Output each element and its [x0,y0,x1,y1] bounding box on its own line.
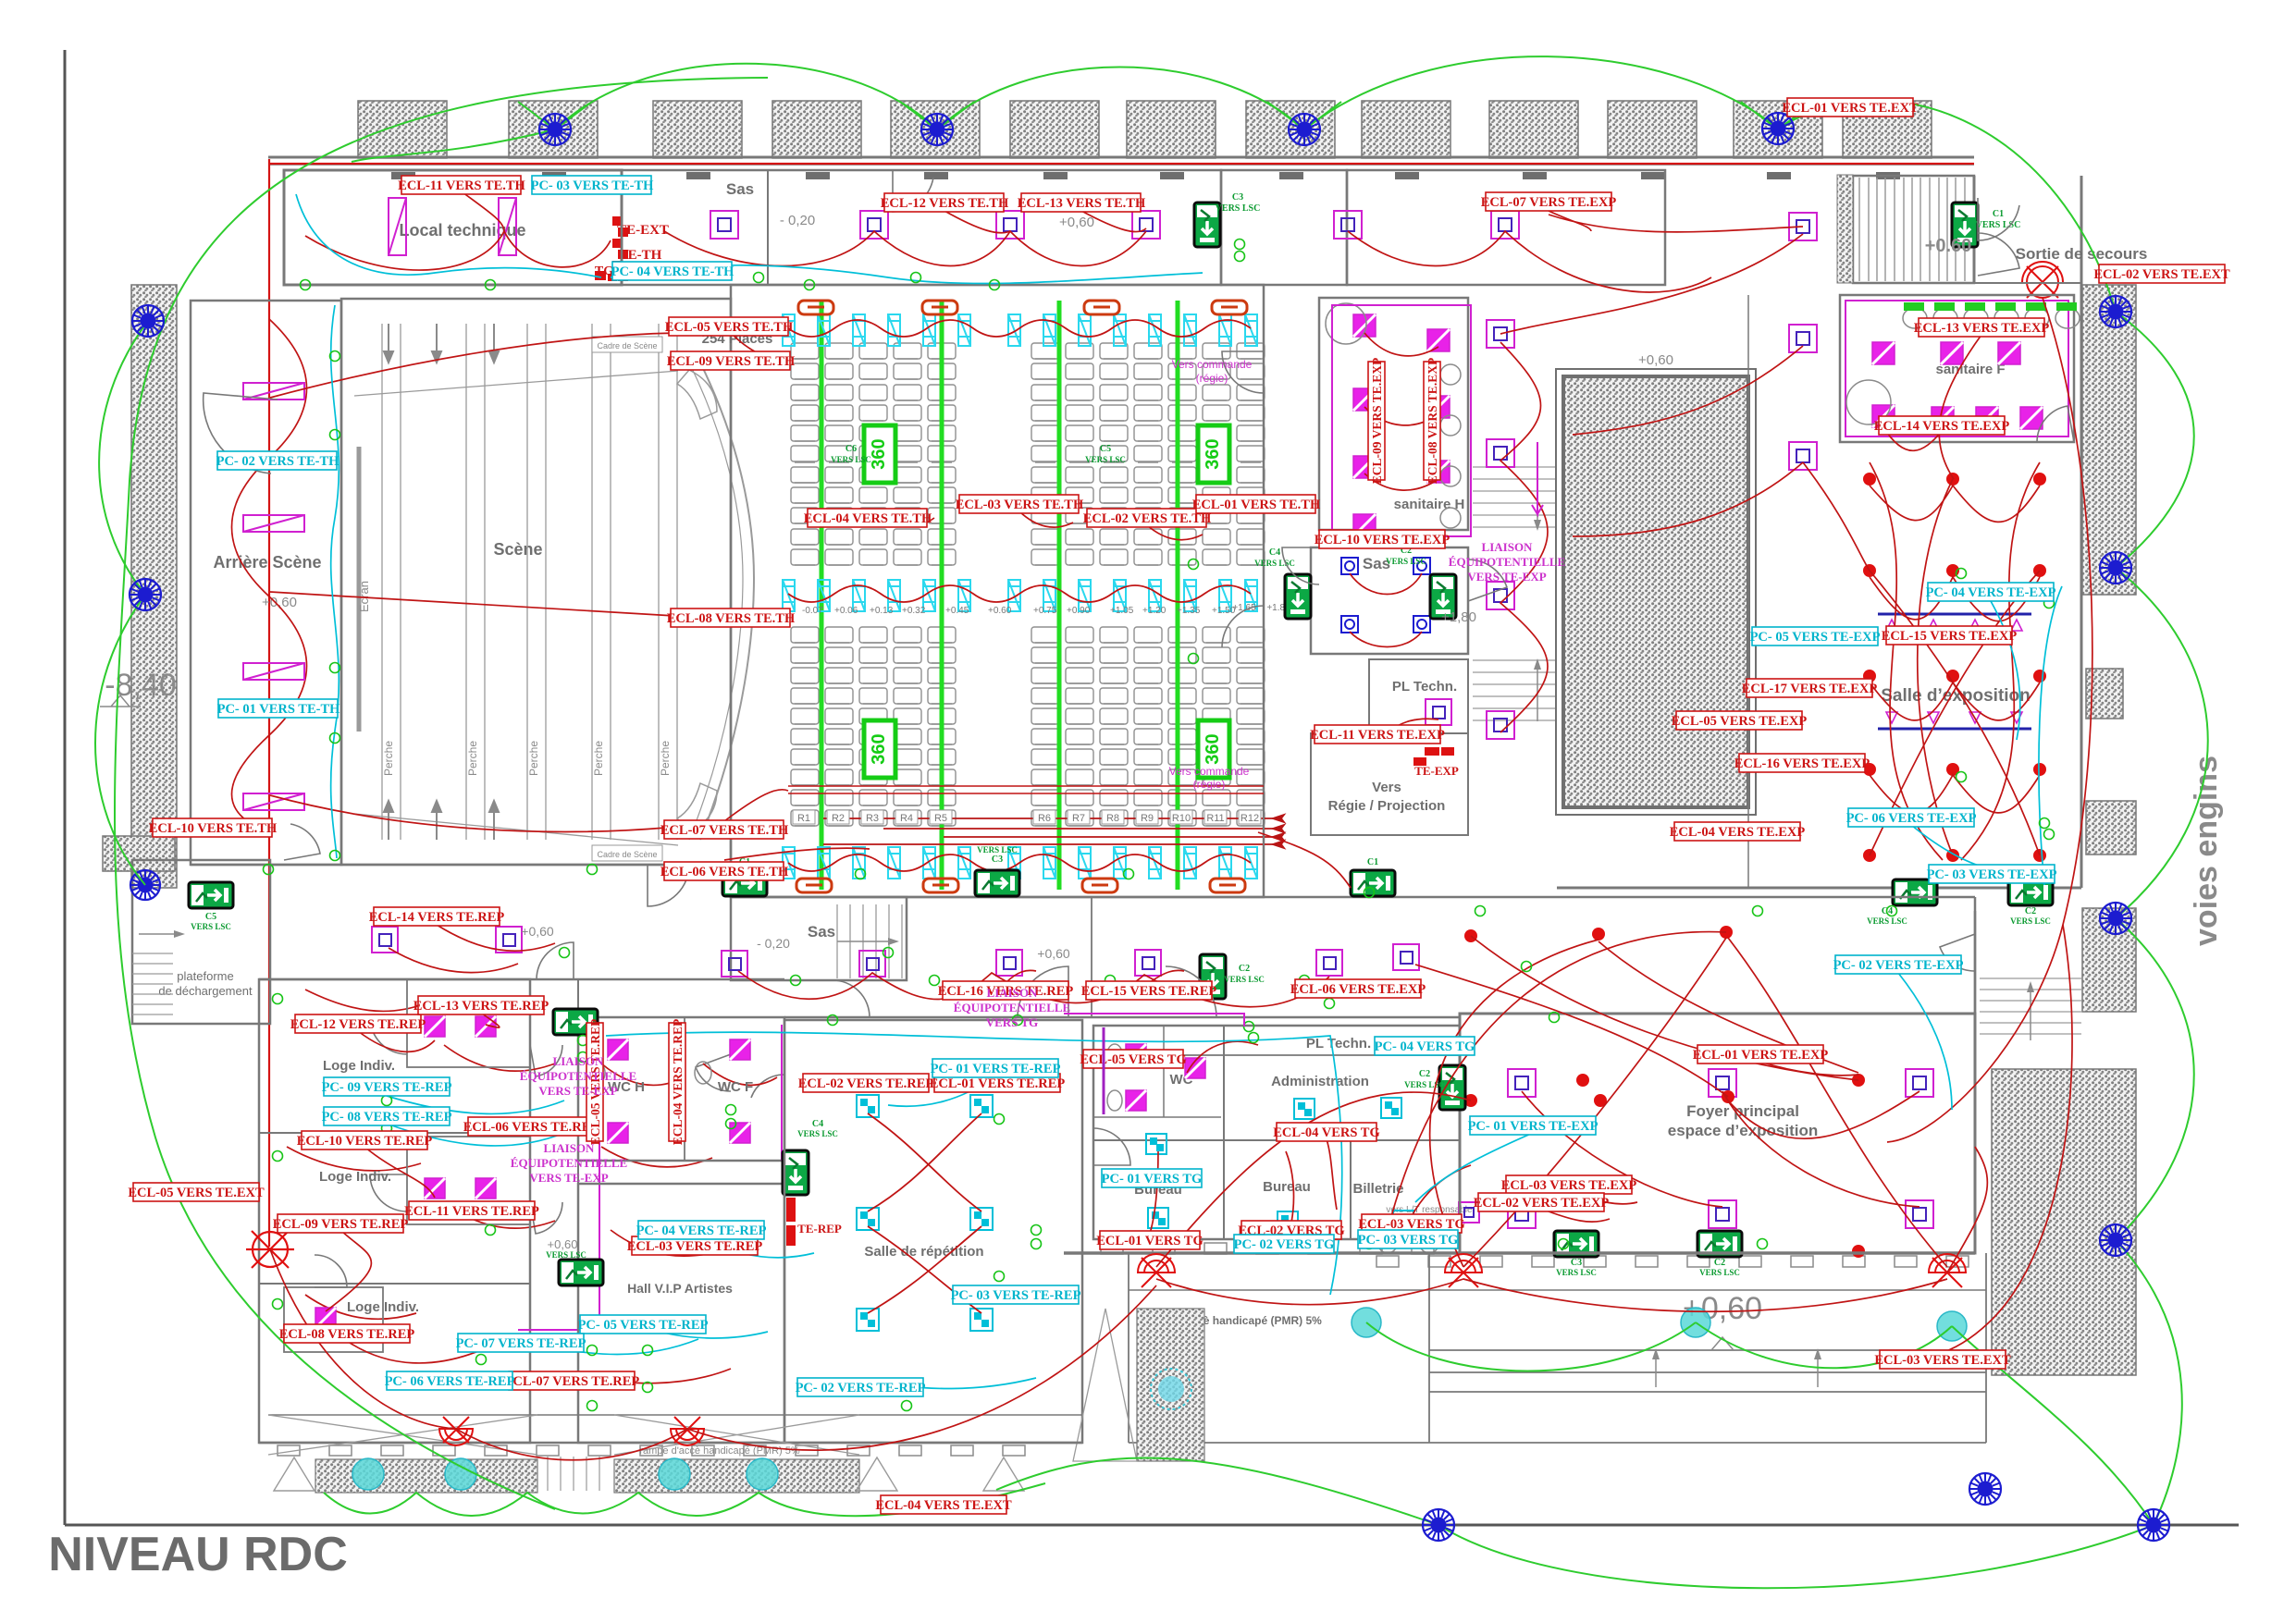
svg-text:- 0,20: - 0,20 [780,213,815,228]
svg-text:(régie): (régie) [1196,372,1228,385]
svg-text:Perche: Perche [592,741,605,776]
svg-text:Arrière Scène: Arrière Scène [213,553,321,572]
svg-text:VERS LSC: VERS LSC [1254,559,1295,568]
svg-text:ECL-05 VERS TE.EXT: ECL-05 VERS TE.EXT [128,1186,265,1200]
svg-text:ÉQUIPOTENTIELLE: ÉQUIPOTENTIELLE [954,1001,1070,1014]
svg-text:ECL-04 VERS TE.REP: ECL-04 VERS TE.REP [671,1019,685,1145]
svg-text:Sas: Sas [808,923,835,941]
svg-text:+0,60: +0,60 [262,595,297,610]
svg-text:PC- 03 VERS TE-EXP: PC- 03 VERS TE-EXP [1927,867,2057,882]
svg-text:PC- 01 VERS TE-REP: PC- 01 VERS TE-REP [931,1062,1061,1076]
svg-text:PC- 04 VERS TE-TH: PC- 04 VERS TE-TH [611,264,735,279]
svg-text:R5: R5 [934,813,947,824]
svg-text:ECL-13 VERS TE.REP: ECL-13 VERS TE.REP [414,999,549,1014]
svg-text:ECL-13 VERS TE.TH: ECL-13 VERS TE.TH [1018,196,1146,211]
svg-text:ECL-11 VERS TE.TH: ECL-11 VERS TE.TH [398,178,525,193]
svg-text:VERS LSC: VERS LSC [1556,1268,1597,1277]
svg-text:ECL-05 VERS TG: ECL-05 VERS TG [1080,1052,1187,1067]
svg-text:PC- 09 VERS TE-REP: PC- 09 VERS TE-REP [322,1080,452,1095]
svg-text:-0.07: -0.07 [802,606,823,616]
svg-text:VERS LSC: VERS LSC [1224,975,1265,984]
svg-text:ECL-07 VERS TE.TH: ECL-07 VERS TE.TH [660,823,789,838]
svg-text:ECL-17 VERS TE.EXP: ECL-17 VERS TE.EXP [1742,682,1878,696]
svg-text:ECL-08 VERS TE.TH: ECL-08 VERS TE.TH [667,611,796,626]
svg-text:TE-TH: TE-TH [619,248,662,263]
svg-text:ECL-04 VERS TE.TH: ECL-04 VERS TE.TH [804,511,932,526]
svg-text:PC- 04 VERS TE-REP: PC- 04 VERS TE-REP [636,1223,767,1238]
svg-text:PC- 03 VERS TE-REP: PC- 03 VERS TE-REP [951,1288,1081,1303]
svg-text:VERS LSC: VERS LSC [191,922,231,931]
svg-text:VERS LSC: VERS LSC [1699,1268,1740,1277]
svg-text:C2: C2 [1239,964,1250,974]
svg-text:ECL-14 VERS TE.REP: ECL-14 VERS TE.REP [369,910,505,925]
svg-text:R4: R4 [900,813,913,824]
svg-text:Foyer principal: Foyer principal [1686,1102,1799,1120]
svg-text:PC- 08 VERS TE-REP: PC- 08 VERS TE-REP [322,1110,452,1125]
svg-text:+0.75: +0.75 [1033,606,1057,616]
svg-text:ECL-01 VERS TG: ECL-01 VERS TG [1096,1234,1204,1248]
svg-text:ECL-15 VERS TE.REP: ECL-15 VERS TE.REP [1081,984,1217,999]
svg-text:VERS LSC: VERS LSC [546,1250,586,1260]
svg-text:ECL-01 VERS TE.EXP: ECL-01 VERS TE.EXP [1693,1048,1829,1063]
svg-text:VERS LSC: VERS LSC [1386,557,1426,566]
svg-text:R8: R8 [1106,813,1119,824]
svg-text:+0,60: +0,60 [548,1237,578,1251]
svg-text:C5: C5 [205,912,216,922]
svg-text:+0,60: +0,60 [1059,215,1094,230]
svg-text:ECL-03 VERS TE.EXT: ECL-03 VERS TE.EXT [1874,1353,2011,1368]
svg-text:PC- 05 VERS TE-REP: PC- 05 VERS TE-REP [578,1318,709,1333]
svg-text:360: 360 [869,733,889,764]
svg-text:ECL-10 VERS TE.REP: ECL-10 VERS TE.REP [297,1134,433,1149]
svg-text:+0,60: +0,60 [1037,946,1070,961]
svg-text:Loge Indiv.: Loge Indiv. [323,1058,395,1074]
svg-text:+0.60: +0.60 [988,606,1012,616]
svg-text:espace d’exposition: espace d’exposition [1668,1122,1819,1139]
svg-text:Administration: Administration [1271,1074,1369,1089]
svg-text:voies engins: voies engins [2189,756,2224,946]
svg-text:360: 360 [1203,438,1223,469]
svg-text:+1,80: +1,80 [1441,609,1476,625]
svg-text:plateforme: plateforme [177,969,233,983]
svg-text:ÉQUIPOTENTIELLE: ÉQUIPOTENTIELLE [1449,555,1565,569]
svg-text:Perche: Perche [466,741,479,776]
svg-text:Perche: Perche [659,741,672,776]
svg-text:TE-EXP: TE-EXP [1414,764,1459,778]
svg-text:VERS LSC: VERS LSC [977,845,1018,855]
svg-text:ECL-13 VERS TE.EXP: ECL-13 VERS TE.EXP [1914,321,2050,336]
svg-text:C2: C2 [1714,1258,1725,1268]
svg-text:PC- 02 VERS TE-TH: PC- 02 VERS TE-TH [216,454,340,469]
svg-text:+0.32: +0.32 [902,606,926,616]
svg-text:VERS LSC: VERS LSC [1085,455,1126,464]
svg-text:ECL-02 VERS TE.REP: ECL-02 VERS TE.REP [798,1076,934,1091]
svg-text:TE-REP: TE-REP [797,1222,842,1236]
svg-text:VERS TE-EXP: VERS TE-EXP [538,1084,617,1098]
svg-text:C5: C5 [1100,444,1111,454]
svg-text:ECL-14 VERS TE.EXP: ECL-14 VERS TE.EXP [1874,419,2010,434]
svg-text:R12: R12 [1241,813,1259,824]
svg-text:ECL-10 VERS TE.EXP: ECL-10 VERS TE.EXP [1315,533,1450,547]
svg-text:ECL-07 VERS TE.EXP: ECL-07 VERS TE.EXP [1481,195,1617,210]
svg-text:ECL-05 VERS TE.EXP: ECL-05 VERS TE.EXP [1672,714,1808,729]
svg-text:360: 360 [869,438,889,469]
svg-text:Salle de répétition: Salle de répétition [864,1244,983,1260]
svg-text:ECL-01 VERS TE.REP: ECL-01 VERS TE.REP [930,1076,1066,1091]
svg-text:PC- 01 VERS TG: PC- 01 VERS TG [1102,1172,1203,1187]
svg-text:ECL-09 VERS TE.EXP: ECL-09 VERS TE.EXP [1370,358,1384,484]
svg-text:C4: C4 [812,1119,823,1129]
svg-text:Perche: Perche [382,741,395,776]
svg-text:ECL-03 VERS TE.TH: ECL-03 VERS TE.TH [956,498,1084,512]
svg-text:C2: C2 [2025,906,2036,916]
svg-text:ÉQUIPOTENTIELLE: ÉQUIPOTENTIELLE [520,1069,636,1083]
svg-text:PC- 04 VERS TG: PC- 04 VERS TG [1375,1039,1475,1054]
svg-text:ECL-08 VERS TE.REP: ECL-08 VERS TE.REP [279,1327,415,1342]
svg-text:PC- 04 VERS TE-EXP: PC- 04 VERS TE-EXP [1926,585,2056,600]
svg-text:PC- 06 VERS TE-EXP: PC- 06 VERS TE-EXP [1846,811,1977,826]
svg-text:+1.35: +1.35 [1177,606,1201,616]
svg-text:Cadre de Scène: Cadre de Scène [597,341,657,350]
svg-text:ECL-10 VERS TE.TH: ECL-10 VERS TE.TH [149,821,278,836]
svg-text:(régie): (régie) [1193,778,1226,791]
svg-text:- 0,20: - 0,20 [757,936,790,951]
svg-text:+0.45: +0.45 [945,606,969,616]
svg-text:Sas: Sas [726,180,754,198]
svg-text:Cadre de Scène: Cadre de Scène [597,850,657,859]
svg-text:PC- 02 VERS TE-REP: PC- 02 VERS TE-REP [796,1381,926,1396]
svg-text:PL Techn.: PL Techn. [1306,1036,1371,1051]
svg-text:ÉQUIPOTENTIELLE: ÉQUIPOTENTIELLE [511,1156,627,1170]
svg-text:PC- 01 VERS TE-EXP: PC- 01 VERS TE-EXP [1468,1119,1599,1134]
svg-text:VERS LSC: VERS LSC [1404,1080,1445,1089]
svg-text:Sortie de secours: Sortie de secours [2016,245,2148,263]
svg-text:ECL-15 VERS TE.EXP: ECL-15 VERS TE.EXP [1882,629,2018,644]
svg-text:TE-EXT: TE-EXT [617,223,669,238]
svg-text:PC- 02 VERS TE-EXP: PC- 02 VERS TE-EXP [1833,958,1964,973]
svg-text:VERS LSC: VERS LSC [797,1129,838,1138]
svg-text:PC- 06 VERS TE-REP: PC- 06 VERS TE-REP [385,1374,515,1389]
svg-text:VERS TE-EXP: VERS TE-EXP [1467,570,1546,584]
svg-text:Loge Indiv.: Loge Indiv. [319,1169,391,1185]
svg-text:R2: R2 [832,813,845,824]
svg-text:sanitaire H: sanitaire H [1394,497,1465,512]
svg-text:PC- 05 VERS TE-EXP: PC- 05 VERS TE-EXP [1750,630,1881,645]
svg-text:+1.65: +1.65 [1232,603,1256,613]
svg-text:+0,60: +0,60 [521,924,554,939]
svg-text:LIAISON: LIAISON [1482,540,1534,554]
svg-text:C1: C1 [1367,857,1378,867]
svg-text:Hall V.I.P Artistes: Hall V.I.P Artistes [627,1281,733,1296]
svg-text:de déchargement: de déchargement [158,984,253,998]
svg-text:ECL-02 VERS TE.TH: ECL-02 VERS TE.TH [1083,511,1212,526]
svg-text:C3: C3 [992,855,1003,865]
svg-text:ECL-05 VERS TE.TH: ECL-05 VERS TE.TH [665,320,794,335]
svg-text:LIAISON: LIAISON [553,1054,605,1068]
svg-text:VERS LSC: VERS LSC [831,455,871,464]
svg-text:R10: R10 [1172,813,1191,824]
svg-text:R1: R1 [797,813,810,824]
svg-text:ECL-02 VERS TE.EXT: ECL-02 VERS TE.EXT [2093,267,2230,282]
svg-text:C6: C6 [846,444,857,454]
svg-text:ECL-01 VERS TE.TH: ECL-01 VERS TE.TH [1192,498,1321,512]
svg-text:LIAISON: LIAISON [987,986,1039,1000]
svg-text:C3: C3 [1232,192,1243,203]
svg-text:PC- 01 VERS TE-TH: PC- 01 VERS TE-TH [217,702,341,717]
svg-text:Bureau: Bureau [1263,1179,1311,1195]
svg-text:R9: R9 [1141,813,1154,824]
svg-text:ECL-12 VERS TE.TH: ECL-12 VERS TE.TH [881,196,1009,211]
svg-text:ECL-02 VERS TE.EXP: ECL-02 VERS TE.EXP [1474,1196,1610,1211]
svg-text:Scène: Scène [493,540,542,559]
svg-text:+1.20: +1.20 [1142,606,1167,616]
svg-text:VERS TE-EXP: VERS TE-EXP [529,1171,608,1185]
svg-text:ECL-04 VERS TE.EXT: ECL-04 VERS TE.EXT [875,1498,1012,1513]
svg-text:Régie / Projection: Régie / Projection [1328,798,1446,814]
svg-text:PC- 03 VERS TG: PC- 03 VERS TG [1358,1233,1459,1248]
svg-text:R7: R7 [1072,813,1085,824]
svg-text:+0.06: +0.06 [834,606,858,616]
svg-text:VERS LSC: VERS LSC [1216,203,1261,214]
svg-text:360: 360 [1203,733,1223,764]
svg-text:VERS LSC: VERS LSC [1867,916,1907,926]
svg-text:+0.60: +0.60 [1925,236,1972,256]
svg-text:ECL-09 VERS TE.TH: ECL-09 VERS TE.TH [667,354,796,369]
svg-text:PC- 02 VERS TG: PC- 02 VERS TG [1234,1237,1335,1252]
svg-text:C4: C4 [1269,547,1280,558]
svg-text:+0.13: +0.13 [870,606,894,616]
svg-text:VERS LSC: VERS LSC [2010,916,2051,926]
svg-text:ECL-11 VERS TE.EXP: ECL-11 VERS TE.EXP [1310,728,1445,743]
svg-text:ECL-08 VERS TE.EXP: ECL-08 VERS TE.EXP [1426,358,1439,484]
svg-text:WC F: WC F [718,1079,753,1095]
svg-text:ECL-07 VERS TE.REP: ECL-07 VERS TE.REP [504,1374,640,1389]
svg-text:Perche: Perche [527,741,540,776]
svg-text:PC- 07 VERS TE-REP: PC- 07 VERS TE-REP [456,1336,586,1351]
svg-text:ECL-06 VERS TE.EXP: ECL-06 VERS TE.EXP [1290,982,1426,997]
svg-text:+0,60: +0,60 [1638,352,1673,368]
svg-text:PL Techn.: PL Techn. [1392,679,1457,695]
svg-text:ECL-16 VERS TE.EXP: ECL-16 VERS TE.EXP [1734,756,1870,771]
svg-text:C3: C3 [1571,1258,1582,1268]
svg-text:C2: C2 [1419,1069,1430,1079]
svg-text:ECL-04 VERS TG: ECL-04 VERS TG [1273,1125,1380,1140]
svg-text:NIVEAU RDC: NIVEAU RDC [48,1528,348,1581]
svg-text:Vers commande: Vers commande [1172,358,1253,371]
svg-text:R3: R3 [866,813,879,824]
svg-text:ECL-06 VERS TE.TH: ECL-06 VERS TE.TH [660,865,789,879]
svg-text:ECL-12 VERS TE.REP: ECL-12 VERS TE.REP [290,1017,426,1032]
svg-text:R11: R11 [1206,813,1224,824]
svg-text:C1: C1 [1993,209,2004,219]
svg-text:ECL-04 VERS TE.EXP: ECL-04 VERS TE.EXP [1670,825,1806,840]
svg-text:VERS TG: VERS TG [986,1015,1038,1029]
svg-text:VERS LSC: VERS LSC [1976,220,2021,230]
svg-text:ECL-11 VERS TE.REP: ECL-11 VERS TE.REP [404,1204,539,1219]
svg-text:R6: R6 [1038,813,1051,824]
svg-text:-8,40: -8,40 [105,668,177,703]
svg-text:Vers: Vers [1372,780,1401,795]
svg-text:Billetrie: Billetrie [1352,1181,1403,1197]
svg-text:+0.90: +0.90 [1067,606,1091,616]
svg-text:Vers commande: Vers commande [1169,765,1250,778]
svg-text:+1.05: +1.05 [1110,606,1134,616]
svg-text:PC- 03 VERS TE-TH: PC- 03 VERS TE-TH [531,178,655,193]
svg-text:ECL-03 VERS TE.EXP: ECL-03 VERS TE.EXP [1501,1178,1637,1193]
svg-text:ECL-06 VERS TE.REP: ECL-06 VERS TE.REP [463,1120,599,1135]
svg-text:ECL-01 VERS TE.EXT: ECL-01 VERS TE.EXT [1782,101,1919,116]
svg-text:ECL-09 VERS TE.REP: ECL-09 VERS TE.REP [273,1217,409,1232]
svg-text:ECL-03 VERS TE.REP: ECL-03 VERS TE.REP [627,1239,763,1254]
svg-text:LIAISON: LIAISON [544,1141,596,1155]
